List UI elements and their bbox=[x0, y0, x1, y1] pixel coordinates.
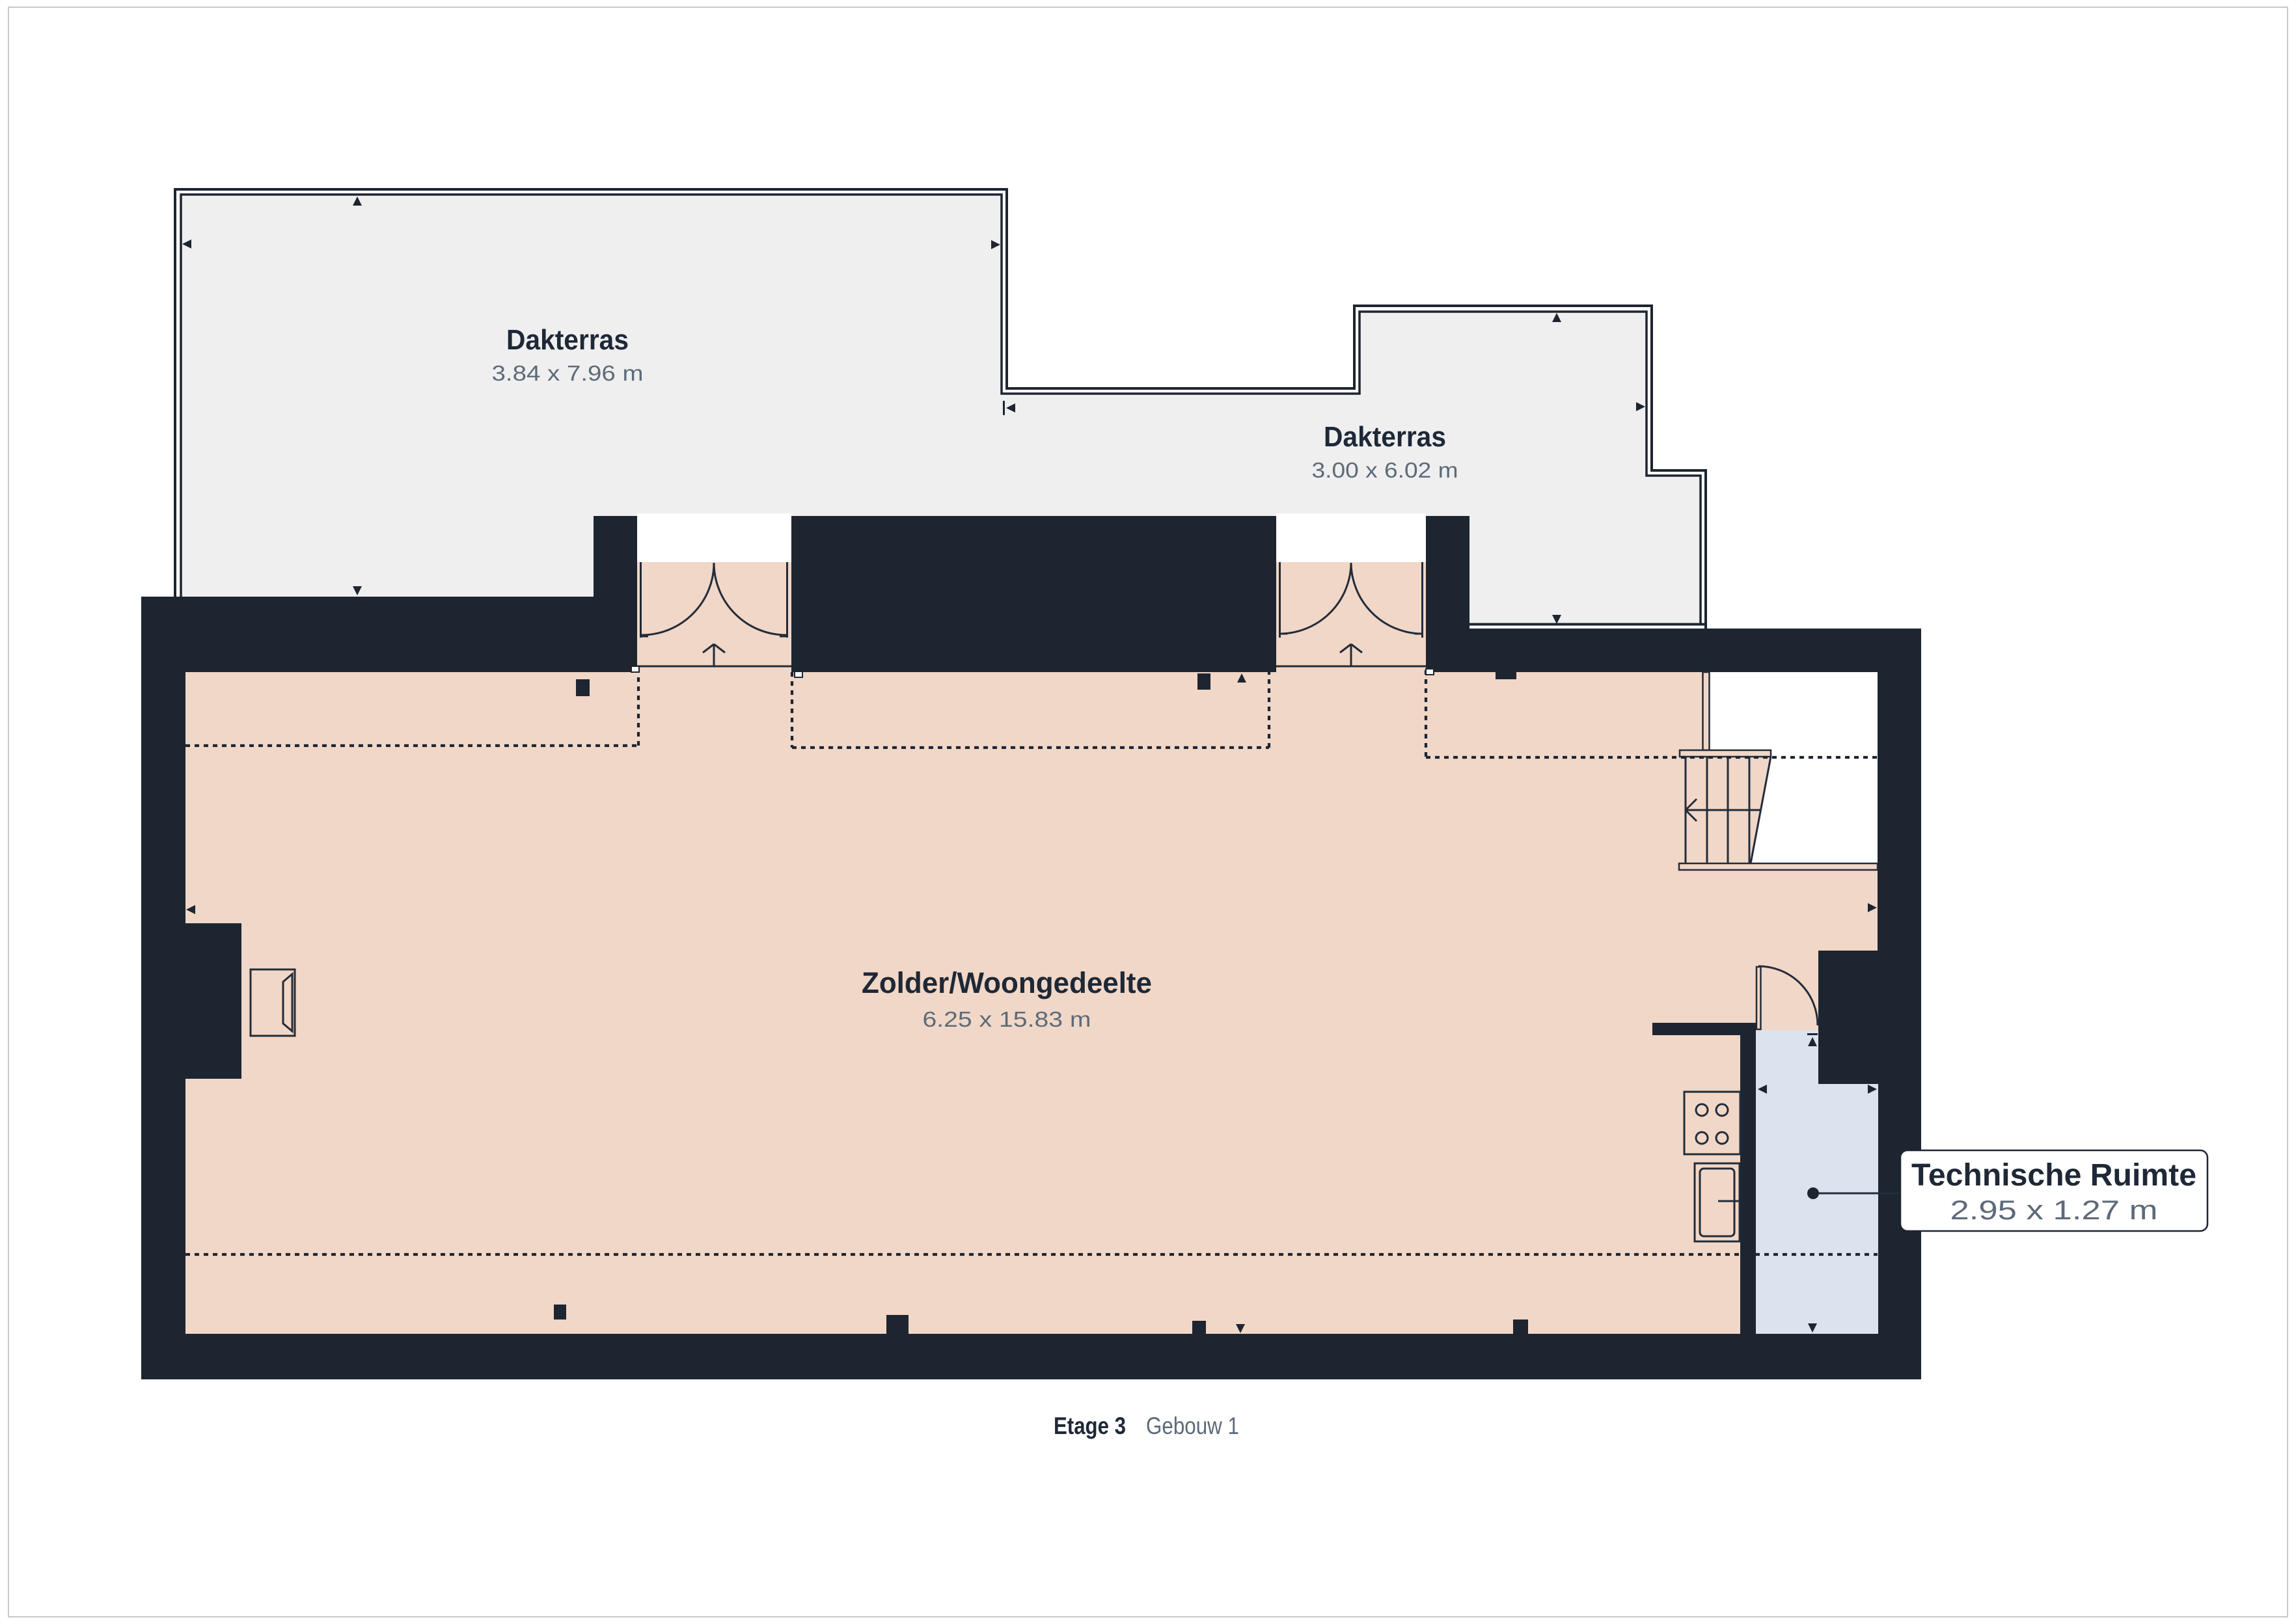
svg-text:Dakterras: Dakterras bbox=[506, 324, 629, 356]
svg-text:3.00 x 6.02 m: 3.00 x 6.02 m bbox=[1312, 458, 1458, 482]
svg-text:Etage 3: Etage 3 bbox=[1054, 1413, 1126, 1439]
svg-text:Dakterras: Dakterras bbox=[1324, 421, 1446, 453]
svg-text:2.95 x 1.27 m: 2.95 x 1.27 m bbox=[1950, 1195, 2158, 1225]
svg-text:Zolder/Woongedeelte: Zolder/Woongedeelte bbox=[862, 966, 1152, 999]
svg-text:3.84 x 7.96 m: 3.84 x 7.96 m bbox=[492, 361, 644, 385]
svg-text:6.25 x 15.83 m: 6.25 x 15.83 m bbox=[923, 1007, 1091, 1031]
svg-text:Technische Ruimte: Technische Ruimte bbox=[1911, 1158, 2196, 1193]
svg-text:Gebouw 1: Gebouw 1 bbox=[1146, 1413, 1239, 1439]
